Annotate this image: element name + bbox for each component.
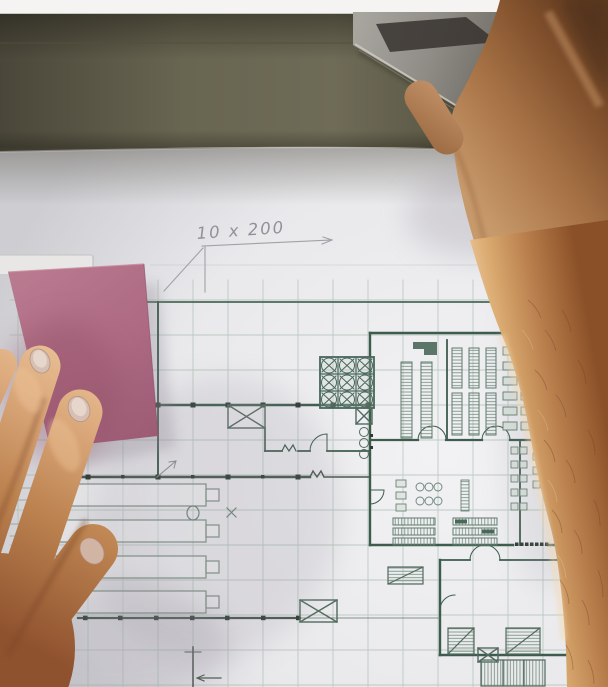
right-thumb [421, 97, 447, 138]
left-ring-fingertip [0, 364, 2, 402]
circle-table-grid [320, 357, 374, 408]
photo-scene: 10 x 200 [0, 0, 608, 687]
